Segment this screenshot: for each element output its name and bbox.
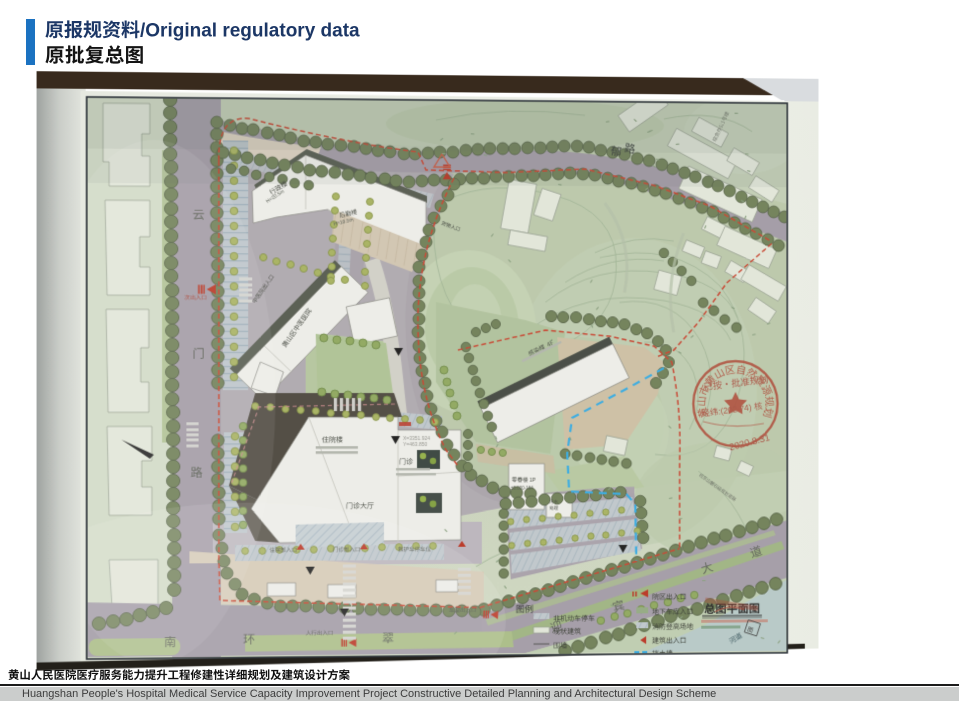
svg-text:/Original regulatory data: /Original regulatory data <box>140 21 360 42</box>
